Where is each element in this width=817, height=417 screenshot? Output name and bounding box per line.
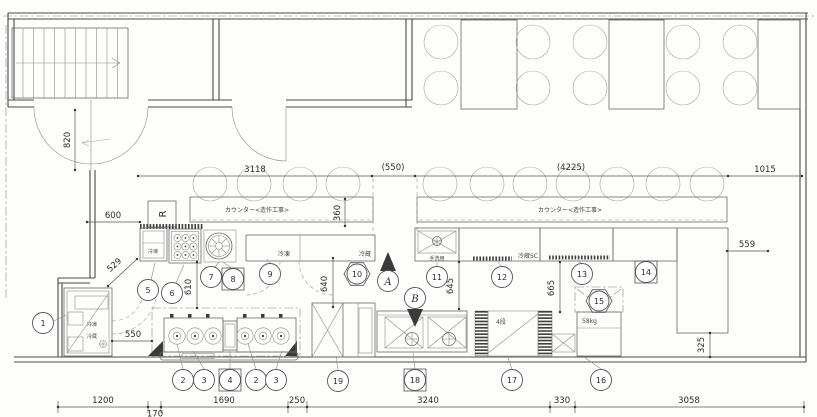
- range-stand: [223, 321, 237, 350]
- riser-box: R: [148, 201, 176, 227]
- shelf-tiers-label: 4段: [496, 318, 506, 326]
- dim-aisle-a: 610: [184, 279, 194, 295]
- chair: [723, 25, 757, 59]
- badge-13: 13: [572, 264, 593, 285]
- entrance-door: [34, 100, 148, 170]
- wall-stub-hatch: [148, 341, 163, 356]
- svg-text:19: 19: [333, 377, 343, 386]
- badge-19: 19: [328, 371, 349, 392]
- badge-leaders: [54, 259, 601, 370]
- svg-text:1: 1: [40, 319, 45, 328]
- fridge-sc-cabinet: 冷蔵SC: [459, 228, 540, 261]
- riser-label: R: [158, 210, 169, 217]
- wall-stub-hatch: [285, 341, 297, 356]
- staircase: [12, 28, 128, 98]
- dim-aisle-c: 645: [446, 278, 456, 294]
- round-cooker: [204, 230, 236, 262]
- hood-outline: [152, 308, 300, 356]
- dining-table: [461, 20, 517, 109]
- dining-area: [424, 20, 800, 109]
- stool: [600, 167, 634, 201]
- badge-3: 3: [194, 370, 215, 391]
- dim-bottom-6: 330: [554, 396, 570, 406]
- badge-1: 1: [33, 313, 54, 334]
- counter-right-label: カウンター<造作工事>: [538, 206, 602, 214]
- section-marker-a: A: [378, 252, 399, 292]
- stool: [326, 167, 360, 201]
- svg-text:13: 13: [577, 270, 587, 279]
- chair: [516, 25, 550, 59]
- dim-bottom-3: 1690: [213, 396, 235, 406]
- badge-5: 5: [138, 280, 159, 301]
- gas-range-right: [237, 314, 296, 352]
- svg-text:18: 18: [410, 376, 420, 385]
- walkin-fridge-freezer: 冷凍 冷蔵: [64, 288, 112, 356]
- svg-text:6: 6: [169, 289, 174, 298]
- column: [677, 228, 728, 333]
- dim-bottom-5: 3240: [417, 396, 439, 406]
- undercounter-freezer-label: 冷凍: [278, 250, 290, 258]
- dim-door: 820: [63, 132, 73, 148]
- hall-door: [232, 107, 286, 161]
- stool: [513, 167, 547, 201]
- stool: [646, 167, 680, 201]
- svg-text:11: 11: [432, 273, 442, 282]
- section-b-label: B: [410, 294, 418, 305]
- dim-col-offset: 325: [697, 337, 707, 353]
- dim-aisle-d: 665: [547, 280, 557, 296]
- svg-text:5: 5: [145, 286, 150, 295]
- dim-bottom-2: 170: [147, 410, 163, 417]
- badge-3b: 3: [266, 370, 287, 391]
- dim-bottom-7: 3058: [678, 396, 700, 406]
- badge-17: 17: [502, 370, 523, 391]
- chair: [516, 71, 550, 105]
- svg-text:2: 2: [253, 376, 258, 385]
- cabinet-14: [613, 228, 677, 261]
- dim-counter-depth: 360: [333, 205, 343, 221]
- svg-text:16: 16: [596, 376, 606, 385]
- dim-right-clear: 1015: [754, 165, 776, 175]
- badge-9: 9: [260, 264, 281, 285]
- stool: [470, 167, 504, 201]
- dim-aisle-b: 640: [320, 276, 330, 292]
- badge-7: 7: [201, 267, 222, 288]
- dim-col-gap: 559: [739, 240, 755, 250]
- stool: [283, 167, 317, 201]
- chair: [424, 71, 458, 105]
- shelf-unit: 4段: [475, 311, 552, 356]
- dim-diag: 529: [105, 256, 124, 274]
- dim-walkin-door: 550: [125, 330, 141, 340]
- svg-text:3: 3: [273, 376, 278, 385]
- svg-text:12: 12: [497, 273, 507, 282]
- badge-10: 10: [344, 263, 370, 286]
- svg-text:9: 9: [267, 270, 272, 279]
- svg-text:8: 8: [230, 275, 235, 284]
- svg-text:7: 7: [208, 273, 213, 282]
- badge-2b: 2: [246, 370, 267, 391]
- equipment-badges: 1 2 3 4 2 3 5 6 7 8 9 10 11 12 13 14 15 …: [33, 261, 658, 392]
- badge-15: 15: [586, 290, 612, 313]
- badge-12: 12: [492, 267, 513, 288]
- badge-8: 8: [222, 268, 244, 290]
- cabinet-13: [540, 228, 613, 261]
- chair: [666, 25, 700, 59]
- badge-4: 4: [219, 369, 241, 391]
- badge-18: 18: [404, 369, 426, 391]
- stool: [423, 167, 457, 201]
- svg-text:15: 15: [594, 297, 604, 306]
- badge-2: 2: [173, 370, 194, 391]
- chair: [573, 71, 607, 105]
- dim-counter-left: 3118: [244, 165, 266, 175]
- dim-bottom-4: 250: [289, 396, 305, 406]
- section-marker-b: B: [405, 288, 426, 328]
- upright-freezer-label: 冷凍: [148, 248, 158, 255]
- gas-range-left: [164, 314, 223, 352]
- badge-14: 14: [635, 261, 657, 283]
- stool: [690, 167, 724, 201]
- dim-bottom-1: 1200: [92, 396, 114, 406]
- walkin-fridge-label: 冷蔵: [87, 333, 97, 340]
- badge-11: 11: [427, 267, 448, 288]
- stair-direction-arrow: [16, 58, 120, 68]
- badge-16: 16: [591, 370, 612, 391]
- rice-weight-label: 58kg: [582, 318, 597, 325]
- hand-sink-label: 手洗用: [429, 255, 444, 262]
- section-a-label: A: [383, 277, 391, 288]
- svg-text:17: 17: [507, 376, 517, 385]
- dim-counter-gap: (550): [382, 163, 405, 173]
- rice-bin: 58kg: [577, 312, 621, 356]
- chair: [424, 25, 458, 59]
- dining-table: [758, 20, 800, 109]
- dim-entry-offset: 600: [105, 211, 121, 221]
- counter-left-label: カウンター<造作工事>: [225, 206, 289, 214]
- chair: [573, 25, 607, 59]
- work-table-19: [312, 303, 375, 357]
- svg-text:2: 2: [180, 376, 185, 385]
- svg-text:3: 3: [201, 376, 206, 385]
- svg-text:10: 10: [352, 270, 362, 279]
- floor-plan-page: カウンター<造作工事> カウンター<造作工事> R 冷凍: [0, 0, 817, 417]
- stool: [193, 167, 227, 201]
- double-sink: [377, 311, 467, 352]
- counter-stools: [193, 167, 724, 201]
- svg-text:4: 4: [227, 376, 232, 385]
- fridge-sc-label: 冷蔵SC: [518, 252, 538, 260]
- dining-table: [609, 20, 664, 109]
- badge-6: 6: [162, 283, 183, 304]
- chair: [723, 71, 757, 105]
- upright-freezer: 冷凍: [140, 228, 167, 261]
- bottom-dimension-line: 1200 170 1690 250 3240 330 3058: [57, 396, 805, 417]
- svg-text:14: 14: [641, 268, 651, 277]
- walkin-freezer-label: 冷凍: [87, 321, 97, 328]
- chair: [666, 71, 700, 105]
- floor-plan-drawing: カウンター<造作工事> カウンター<造作工事> R 冷凍: [0, 0, 817, 417]
- dim-counter-right: (4225): [557, 163, 585, 173]
- undercounter-fridge-label: 冷蔵: [359, 250, 371, 258]
- gas-table: [169, 229, 201, 263]
- hand-sink: 手洗用: [415, 228, 459, 262]
